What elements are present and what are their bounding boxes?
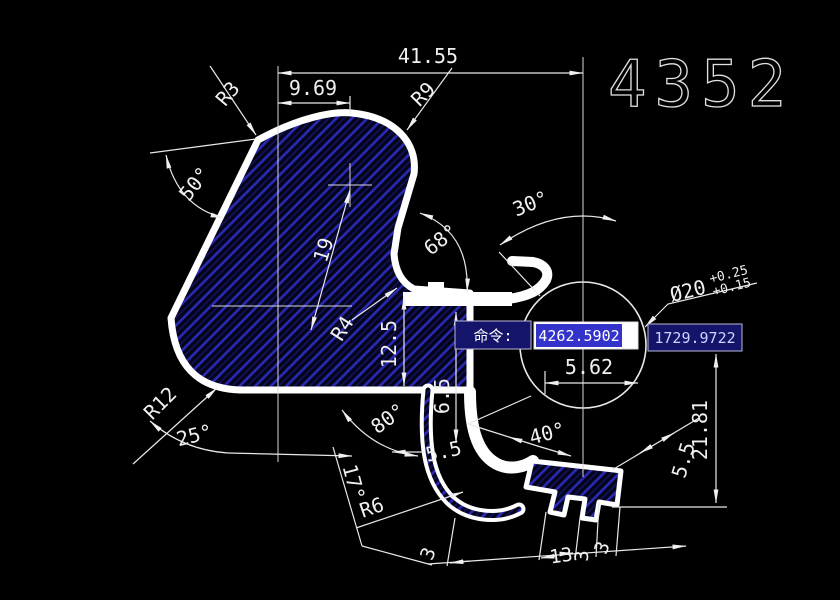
cad-canvas[interactable]: 41.55 9.69 R3 R9 50° 30° 68° 19 R4 12.5 … [0, 0, 840, 600]
command-overlay: 命令: 4262.5902 1729.9722 [455, 321, 742, 351]
coord-x-value[interactable]: 4262.5902 [538, 327, 619, 345]
dim-9-69-label[interactable]: 9.69 [289, 76, 337, 100]
cad-viewport[interactable]: 41.55 9.69 R3 R9 50° 30° 68° 19 R4 12.5 … [0, 0, 840, 600]
dim-5-62-label[interactable]: 5.62 [565, 355, 613, 379]
dim-6-5-label[interactable]: 6.5 [430, 378, 454, 414]
dim-12-5-label[interactable]: 12.5 [377, 320, 401, 368]
dim-3b-label[interactable]: 3 [571, 550, 593, 561]
dim-41-55-label[interactable]: 41.55 [398, 44, 458, 68]
command-label: 命令: [473, 327, 512, 345]
drawing-number[interactable]: 4352 [608, 48, 794, 122]
coord-y-value: 1729.9722 [654, 329, 735, 347]
